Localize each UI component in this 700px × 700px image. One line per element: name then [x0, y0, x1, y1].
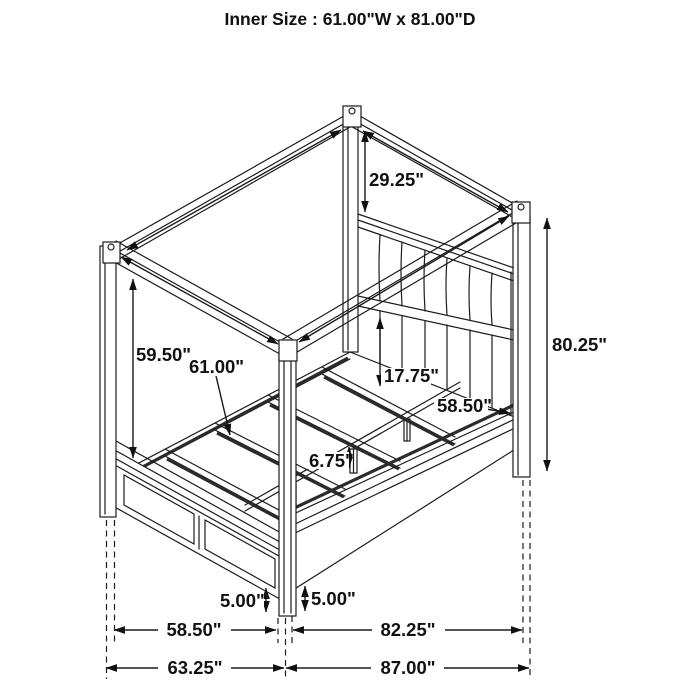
dim-frame-inner-width: 58.50" [437, 395, 492, 416]
headboard [350, 214, 517, 418]
canopy-corner-cap [279, 340, 297, 361]
dim-slat-length: 61.00" [189, 356, 244, 377]
dimension-labels: Inner Size : 61.00"W x 81.00"D 29.25" 80… [136, 9, 607, 678]
post-right [513, 216, 530, 477]
dim-canopy-clearance: 59.50" [136, 344, 191, 365]
dim-siderail-clearance: 5.00" [311, 588, 356, 609]
footboard-with-drawers [111, 441, 290, 603]
canopy-corner-cap [512, 202, 530, 223]
dim-headboard-panel-clearance: 17.75" [384, 365, 439, 386]
canopy-bed-dimension-diagram: Inner Size : 61.00"W x 81.00"D 29.25" 80… [0, 0, 700, 700]
bed-dimension-diagram-page: Inner Size : 61.00"W x 81.00"D 29.25" 80… [0, 0, 700, 700]
side-rail [287, 405, 517, 590]
dim-canopy-to-headboard: 29.25" [369, 169, 424, 190]
dim-footboard-clearance: 5.00" [220, 590, 265, 611]
post-back-left [100, 246, 116, 517]
dim-center-leg-height: 6.75" [309, 450, 354, 471]
dim-overall-width: 63.25" [167, 657, 222, 678]
dim-siderail-span: 82.25" [380, 619, 435, 640]
post-front [279, 352, 296, 616]
canopy-corner-cap [103, 242, 120, 263]
dim-post-height: 80.25" [552, 334, 607, 355]
inner-size-title: Inner Size : 61.00"W x 81.00"D [224, 9, 475, 29]
dim-overall-length: 87.00" [380, 657, 435, 678]
canopy-frame [103, 106, 530, 361]
canopy-corner-cap [343, 106, 361, 127]
dim-footboard-span: 58.50" [166, 619, 221, 640]
